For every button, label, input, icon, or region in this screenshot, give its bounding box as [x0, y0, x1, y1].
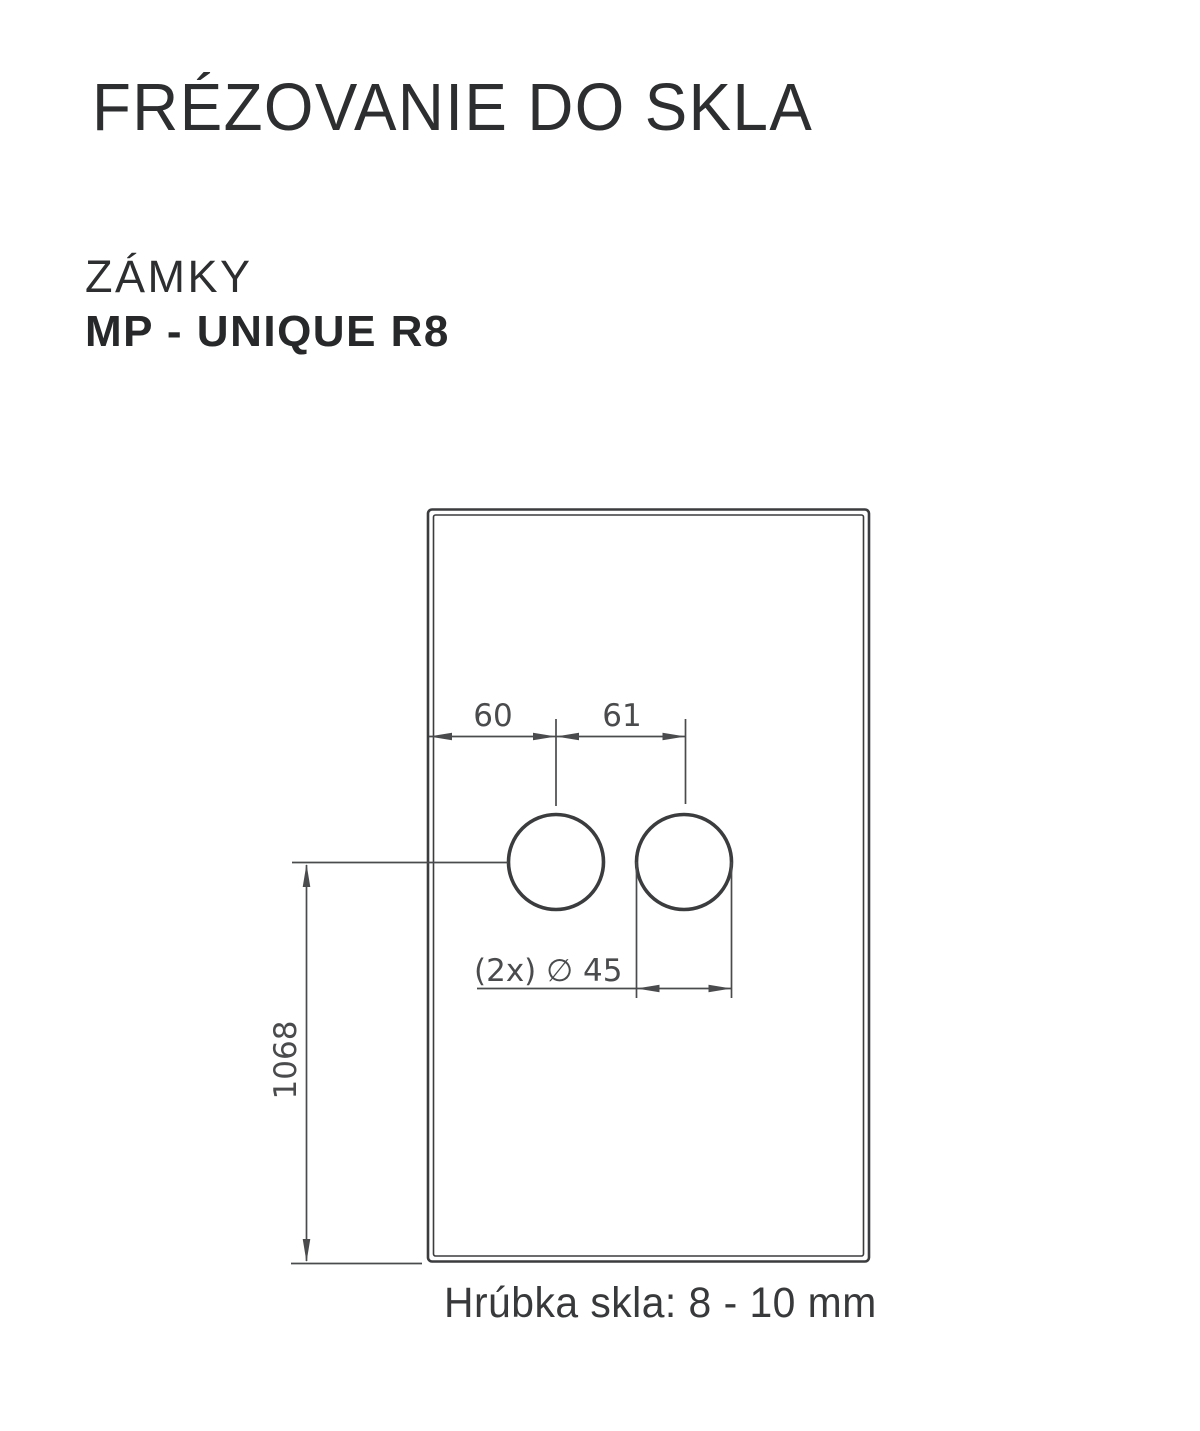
dim-label-height: 1068: [268, 1021, 304, 1100]
arrow-right-at-hole2: [663, 733, 686, 741]
dim-label-61: 61: [602, 698, 641, 734]
hole-right: [637, 815, 732, 910]
hole-diameter-label: (2x) ∅ 45: [474, 953, 622, 989]
datasheet-page: FRÉZOVANIE DO SKLA ZÁMKY MP - UNIQUE R8 …: [0, 0, 1200, 1431]
arrow-left-at-hole1: [556, 733, 579, 741]
arrow-right-at-hole1: [533, 733, 556, 741]
arrow-left-at-edge: [429, 733, 452, 741]
hole-left: [509, 815, 604, 910]
arrow-right-diameter: [709, 985, 732, 993]
arrow-down-height: [303, 1239, 311, 1262]
glass-panel-outline-outer: [428, 510, 869, 1262]
dim-label-60: 60: [473, 698, 512, 734]
glass-panel-outline-inner: [434, 515, 864, 1256]
arrow-left-diameter: [637, 985, 660, 993]
glass-thickness-note: Hrúbka skla: 8 - 10 mm: [444, 1282, 877, 1325]
arrow-up-height: [303, 864, 311, 887]
technical-drawing: 60 61 (2x) ∅ 45 1068: [0, 0, 1200, 1431]
